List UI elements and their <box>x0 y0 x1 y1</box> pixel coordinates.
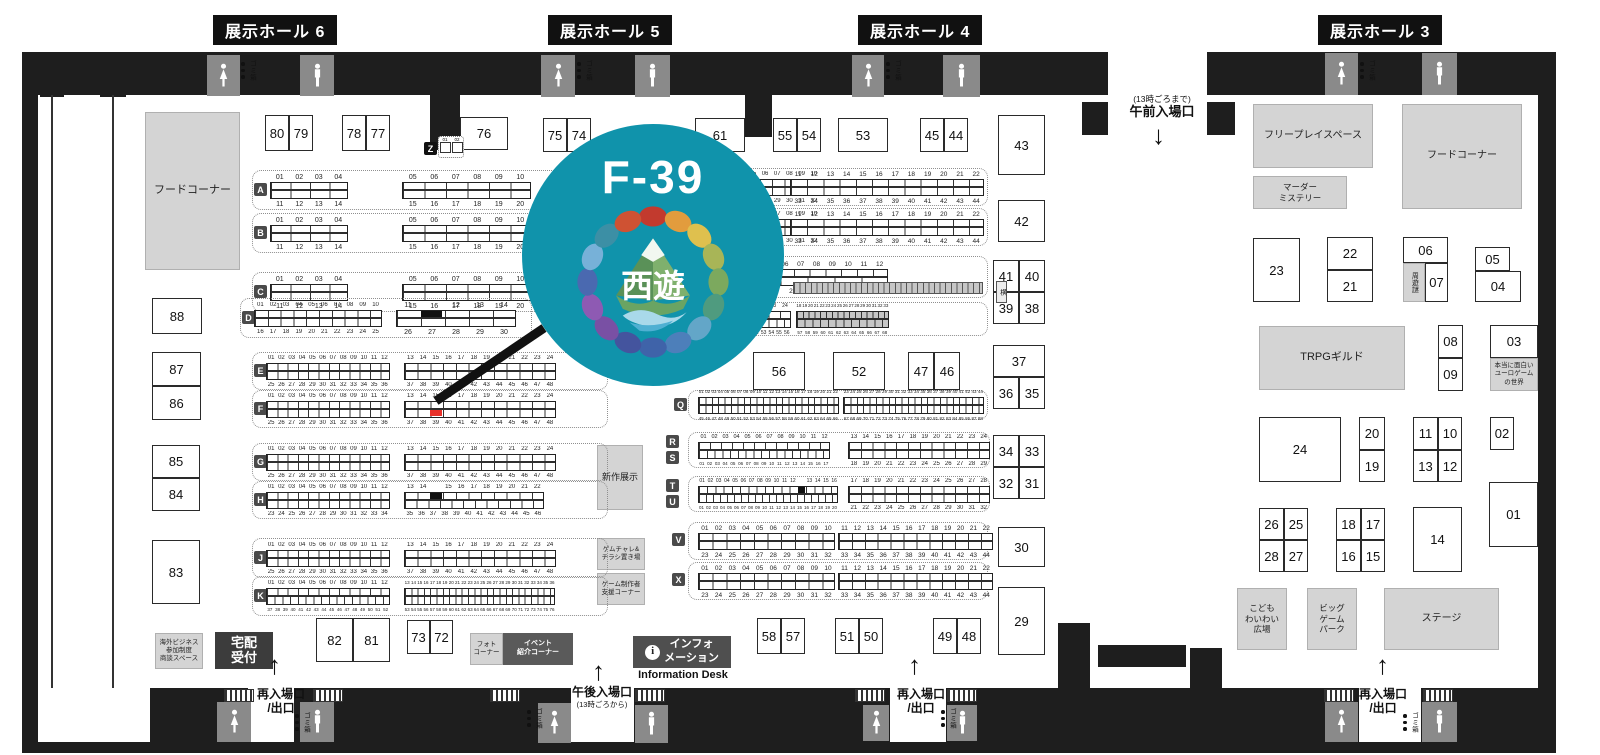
row-cell-numbers-top: 01020304 <box>270 276 348 283</box>
booth-75: 75 <box>543 118 567 152</box>
booth-76: 76 <box>460 117 508 150</box>
booth-79: 79 <box>289 115 313 151</box>
turnstile-hatch <box>947 689 977 702</box>
information-desk-en: Information Desk <box>628 669 738 682</box>
row-cell-numbers-bottom: 333435363738394041424344 <box>838 552 993 559</box>
arrow-up-icon: ↑ <box>1376 652 1389 678</box>
row-cell-numbers-bottom: 16171819202122232425 <box>254 329 382 336</box>
booth-24: 24 <box>1259 417 1341 482</box>
trash-bin-marker: ゴミ箱 <box>527 708 543 729</box>
turnstile-hatch <box>1324 689 1354 702</box>
row-booth-strip <box>404 550 556 567</box>
row-cell-numbers-bottom: 353637383940414243444546 <box>404 511 544 518</box>
row-label-A: A <box>254 183 267 196</box>
logo-text: 西遊 <box>621 268 685 304</box>
row-cell-numbers-top: 010203040506070809101112 <box>266 446 390 453</box>
row-cell-numbers-bottom: 373839404142434445464748 <box>404 420 556 427</box>
row-booth-strip <box>404 492 544 509</box>
pillar <box>1082 52 1108 95</box>
row-booth-strip <box>838 573 993 590</box>
row-label-B: B <box>254 226 267 239</box>
booth-04: 04 <box>1475 271 1521 302</box>
row-cell-numbers-top: 171819202122232425262728 <box>848 478 990 485</box>
hall-name-label: 展示ホール 3 <box>1318 15 1442 45</box>
row-booth-strip <box>266 492 390 509</box>
row-cell-numbers-top: 010203040506070809101112 <box>698 434 830 441</box>
info-icon: i <box>645 645 660 660</box>
booth-53: 53 <box>838 118 888 152</box>
row-booth-strip <box>404 588 555 605</box>
highlighted-booth-code: F-39 <box>602 150 705 204</box>
booth-11: 11 <box>1413 417 1438 450</box>
booth-80: 80 <box>265 115 289 151</box>
booth-02: 02 <box>1490 417 1514 450</box>
row-label-Q: Q <box>674 398 687 411</box>
row-booth-strip <box>698 442 830 459</box>
side-tag: 横 <box>996 281 1007 303</box>
trash-bin-marker: ゴミ箱 <box>886 60 902 81</box>
row-cell-numbers-bottom: 5354555657585960616263646566676869707172… <box>404 607 555 614</box>
row-label-T: T <box>666 479 679 492</box>
row-booth-strip <box>404 454 556 471</box>
row-label-R: R <box>666 435 679 448</box>
row-cell-numbers-top: 131415161718192021222324 <box>404 542 556 549</box>
row-booth-strip <box>396 310 516 327</box>
booth-32: 32 <box>993 467 1019 499</box>
restroom-male-icon <box>1422 702 1457 742</box>
pillar <box>1082 102 1108 135</box>
row-booth-strip <box>404 363 556 380</box>
highlight-circle: F-39 西遊 <box>522 124 784 386</box>
booth-17: 17 <box>1361 508 1385 540</box>
row-cell-numbers-top: 111213141516171819202122 <box>790 211 984 218</box>
turnstile-hatch <box>1423 689 1453 702</box>
afternoon-entrance-label: 午後入場口 <box>566 686 638 700</box>
pillar <box>1058 623 1090 688</box>
booth-83: 83 <box>152 540 200 604</box>
booth-31: 31 <box>1019 467 1045 499</box>
row-booth-strip <box>848 486 990 503</box>
booth-13: 13 <box>1413 450 1438 482</box>
arrow-down-icon: ↓ <box>1152 122 1165 148</box>
row-cell-numbers-bottom: 252627282930313233343536 <box>266 473 390 480</box>
row-label-U: U <box>666 495 679 508</box>
trash-bin-marker: ゴミ箱 <box>1360 60 1376 81</box>
z-booth: 0102 <box>438 136 464 158</box>
row-cell-numbers-bottom: 11121314 <box>270 201 348 208</box>
wall <box>1235 52 1538 95</box>
row-cell-numbers-top: 131415161718192021222324 <box>848 434 990 441</box>
area-big-game-park: ビッグ ゲーム パーク <box>1307 588 1357 650</box>
booth-45: 45 <box>920 118 944 152</box>
exhibition-floor-map: F-39 西遊 展示ホール 6展示ホール 5展示ホール 4展示ホール 3フードコ… <box>0 0 1600 755</box>
row-cell-numbers-bottom: 6768697071727374757677787980818283848586… <box>843 416 984 423</box>
restroom-female-icon <box>1325 702 1358 742</box>
area-murder-mystery: マーダー ミステリー <box>1253 176 1347 209</box>
booth-48: 48 <box>957 618 981 654</box>
row-cell-numbers-top: 050607080910 <box>402 217 531 224</box>
restroom-female-icon <box>541 55 575 97</box>
area-information-desk: iインフォ メーション <box>633 636 731 668</box>
booth-49: 49 <box>933 618 957 654</box>
booth-86: 86 <box>152 386 201 420</box>
saiyu-logo: 西遊 <box>569 198 737 366</box>
row-cell-numbers-top: 13141516171819202122 <box>404 484 544 491</box>
row-booth-strip <box>266 588 390 605</box>
turnstile-hatch <box>224 689 254 702</box>
arrow-up-icon: ↑ <box>592 658 605 684</box>
logo-pebble <box>639 337 667 357</box>
blocked-booth <box>421 311 442 317</box>
row-booth-strip <box>790 179 984 196</box>
area-eurogame-world: 本当に面白い ユーロゲーム の世界 <box>1490 358 1538 391</box>
row-cell-numbers-bottom: 333435363738394041424344 <box>790 238 984 245</box>
booth-88: 88 <box>152 298 202 334</box>
restroom-female-icon <box>1325 53 1358 95</box>
booth-44: 44 <box>944 118 968 152</box>
row-cell-numbers-bottom: 373839404142434445464748 <box>404 569 556 576</box>
booth-03: 03 <box>1490 325 1538 358</box>
restroom-female-icon <box>217 702 251 742</box>
row-cell-numbers-bottom: 0102030405060708091011121314151617 <box>698 461 830 468</box>
area-delivery-reception: 宅配 受付 <box>215 632 273 669</box>
row-cell-numbers-bottom: 232425262728293031323334 <box>266 511 390 518</box>
turnstile-hatch <box>490 689 520 702</box>
blocked-booth <box>430 493 441 499</box>
booth-16: 16 <box>1336 540 1361 572</box>
booth-81: 81 <box>353 618 390 662</box>
booth-73: 73 <box>407 620 430 654</box>
booth-27: 27 <box>1284 540 1308 572</box>
row-cell-numbers-bottom: 252627282930313233343536 <box>266 569 390 576</box>
row-booth-strip <box>402 225 531 242</box>
area-food-corner-east: フードコーナー <box>1402 104 1522 209</box>
row-label-C: C <box>254 285 267 298</box>
booth-12: 12 <box>1438 450 1462 482</box>
restroom-female-icon <box>852 55 884 97</box>
area-event-intro-corner: イベント 紹介コーナー <box>503 633 573 665</box>
row-booth-strip <box>698 533 835 550</box>
arrow-up-icon: ↑ <box>268 652 281 678</box>
gray-sub-strip <box>793 282 983 294</box>
row-label-X: X <box>672 573 685 586</box>
area-puzzle-area: 周遊謎 <box>1403 263 1425 302</box>
booth-22: 22 <box>1327 237 1373 270</box>
pillar <box>100 64 126 97</box>
turnstile-hatch <box>313 689 343 702</box>
booth-08: 08 <box>1438 325 1463 358</box>
row-cell-numbers-top: 131415161718192021222324 <box>404 446 556 453</box>
row-cell-numbers-bottom: 0102030405060708091011121314151617181920 <box>698 505 838 512</box>
morning-entrance-label: 午前入場口 <box>1120 105 1204 120</box>
row-cell-numbers-top: 131415161718192021222324 <box>404 355 556 362</box>
row-cell-numbers-bottom: 2627282930 <box>396 329 516 336</box>
row-booth-strip <box>698 397 839 414</box>
booth-38: 38 <box>1019 292 1045 324</box>
row-cell-numbers-top: 010203040506070809101112 <box>266 393 390 400</box>
turnstile-hatch <box>855 689 885 702</box>
booth-35: 35 <box>1019 377 1045 409</box>
trash-bin-marker: ゴミ箱 <box>577 60 593 81</box>
booth-28: 28 <box>1259 540 1284 572</box>
row-cell-numbers-bottom: 23242526272829303132 <box>698 592 835 599</box>
row-cell-numbers-bottom: 373839404142434445464748 <box>404 382 556 389</box>
booth-72: 72 <box>430 620 453 654</box>
hall-name-label: 展示ホール 4 <box>858 15 982 45</box>
booth-33: 33 <box>1019 435 1045 467</box>
row-cell-numbers-top: 01020304 <box>270 174 348 181</box>
row-cell-numbers-bottom: 11121314 <box>270 244 348 251</box>
booth-58: 58 <box>757 618 781 654</box>
booth-52: 52 <box>833 352 885 390</box>
logo-pebble <box>577 268 597 296</box>
booth-14: 14 <box>1413 507 1462 572</box>
row-cell-numbers-bottom: 575859606162636465666768 <box>796 330 889 337</box>
area-overseas-business-space: 海外ビジネス 参加制度 商談スペース <box>155 633 203 669</box>
wall-line <box>112 95 114 688</box>
row-cell-numbers-top: 1314151617181920212223242526272829303132… <box>404 580 555 587</box>
pillar <box>40 64 64 97</box>
trash-bin-marker: ゴミ箱 <box>295 712 311 733</box>
booth-36: 36 <box>993 377 1019 409</box>
row-booth-strip <box>270 225 348 242</box>
booth-43: 43 <box>998 115 1045 175</box>
row-booth-strip <box>796 311 889 328</box>
booth-42: 42 <box>998 200 1045 242</box>
booth-40: 40 <box>1019 260 1045 292</box>
row-booth-strip <box>266 550 390 567</box>
row-cell-numbers-bottom: 252627282930313233343536 <box>266 420 390 427</box>
row-cell-numbers-bottom: 333435363738394041424344 <box>838 592 993 599</box>
afternoon-entrance-note: (13時ごろから) <box>562 701 642 710</box>
restroom-male-icon <box>635 55 670 97</box>
row-cell-numbers-bottom: 252627282930313233343536 <box>266 382 390 389</box>
pillar <box>1098 645 1186 667</box>
row-booth-strip <box>266 454 390 471</box>
booth-51: 51 <box>835 618 859 654</box>
restroom-male-icon <box>943 55 980 97</box>
row-cell-numbers-top: 010203040506070809101112 <box>266 484 390 491</box>
trash-bin-marker: ゴミ箱 <box>241 60 257 81</box>
booth-78: 78 <box>342 115 366 151</box>
row-booth-strip <box>843 397 984 414</box>
booth-37: 37 <box>993 345 1045 377</box>
row-cell-numbers-top: 111213141516171819202122 <box>838 525 993 532</box>
row-cell-numbers-top: 01020304050607080910 <box>698 565 835 572</box>
booth-06: 06 <box>1403 237 1448 263</box>
pillar <box>1190 648 1222 688</box>
pillar <box>1207 102 1235 135</box>
booth-30: 30 <box>998 527 1045 567</box>
restroom-male-icon <box>300 55 334 96</box>
row-label-Z: Z <box>424 142 437 155</box>
booth-82: 82 <box>316 618 353 662</box>
row-cell-numbers-bottom: 4546474849505152535455565758596061626364… <box>698 416 839 423</box>
row-booth-strip <box>790 219 984 236</box>
wall <box>22 742 1556 753</box>
booth-26: 26 <box>1259 508 1284 540</box>
turnstile-hatch <box>635 689 665 702</box>
row-booth-strip <box>266 401 390 418</box>
restroom-male-icon <box>1422 53 1457 95</box>
booth-23: 23 <box>1253 238 1300 302</box>
pillar <box>1207 52 1235 95</box>
area-free-play-space: フリープレイスペース <box>1253 104 1373 168</box>
hall-name-label: 展示ホール 6 <box>213 15 337 45</box>
row-booth-strip <box>848 442 990 459</box>
row-cell-numbers-top: 11121314 <box>396 302 516 309</box>
booth-84: 84 <box>152 478 200 511</box>
booth-01: 01 <box>1489 482 1538 547</box>
restroom-female-icon <box>207 55 240 96</box>
wall <box>22 52 38 752</box>
row-cell-numbers-top: 050607080910 <box>402 174 531 181</box>
booth-50: 50 <box>859 618 883 654</box>
booth-47: 47 <box>908 352 934 390</box>
area-photo-corner: フォト コーナー <box>470 633 503 665</box>
row-cell-numbers-bottom: 37383940414243444546474849505152 <box>266 607 390 614</box>
booth-57: 57 <box>781 618 805 654</box>
row-cell-numbers-bottom: 23242526272829303132 <box>698 552 835 559</box>
row-cell-numbers-top: 050607080910 <box>402 276 531 283</box>
booth-46: 46 <box>934 352 960 390</box>
restroom-female-icon <box>538 703 571 743</box>
booth-21: 21 <box>1327 270 1373 302</box>
restroom-female-icon <box>863 705 889 741</box>
row-booth-strip <box>266 363 390 380</box>
row-cell-numbers-top: 18192021222324252627282930313233 <box>796 303 889 310</box>
blocked-booth <box>798 487 805 493</box>
row-cell-numbers-bottom: 151617181920 <box>402 244 531 251</box>
trash-bin-marker: ゴミ箱 <box>941 708 957 729</box>
row-cell-numbers-bottom: 212223242526272829303132 <box>848 505 990 512</box>
row-cell-numbers-top: 010203040506070809101112 <box>266 355 390 362</box>
area-trpg-guild: TRPGギルド <box>1259 326 1405 390</box>
row-cell-numbers-bottom: 333435363738394041424344 <box>790 198 984 205</box>
booth-29: 29 <box>998 587 1045 655</box>
wall <box>1538 52 1556 742</box>
trash-bin-marker: ゴミ箱 <box>1403 712 1419 733</box>
row-cell-numbers-top: 131415161718192021222324 <box>404 393 556 400</box>
arrow-up-icon: ↑ <box>908 652 921 678</box>
booth-05: 05 <box>1475 247 1510 271</box>
row-cell-numbers-top: 111213141516171819202122 <box>790 171 984 178</box>
row-cell-numbers-top: 010203040506070809101112 <box>266 580 390 587</box>
row-label-S: S <box>666 451 679 464</box>
restroom-male-icon <box>635 705 668 743</box>
booth-77: 77 <box>366 115 390 151</box>
booth-25: 25 <box>1284 508 1308 540</box>
row-label-V: V <box>672 533 685 546</box>
row-booth-strip <box>402 182 531 199</box>
row-cell-numbers-top: 2324252627282930313233343536373839404142… <box>843 389 984 396</box>
logo-pebble <box>708 268 728 296</box>
row-booth-strip <box>698 486 838 503</box>
logo-pebble <box>639 206 667 226</box>
row-cell-numbers-top: 01020304050607080910 <box>254 302 382 309</box>
row-booth-strip <box>404 401 556 418</box>
booth-15: 15 <box>1361 540 1385 572</box>
booth-54: 54 <box>797 118 821 152</box>
booth-34: 34 <box>993 435 1019 467</box>
wall-line <box>51 95 53 688</box>
row-booth-strip <box>254 310 382 327</box>
row-cell-numbers-top: 111213141516171819202122 <box>838 565 993 572</box>
booth-18: 18 <box>1336 508 1361 540</box>
booth-55: 55 <box>773 118 797 152</box>
row-cell-numbers-bottom: 181920212223242526272829 <box>848 461 990 468</box>
row-booth-strip <box>838 533 993 550</box>
booth-87: 87 <box>152 352 201 386</box>
area-kids-plaza: こども わいわい 広場 <box>1237 588 1287 650</box>
row-cell-numbers-top: 01020304050607080910111213141516 <box>698 478 838 485</box>
row-cell-numbers-top: 01020304 <box>270 217 348 224</box>
area-stage: ステージ <box>1384 588 1499 650</box>
booth-56: 56 <box>753 352 805 390</box>
booth-85: 85 <box>152 445 200 478</box>
booth-07: 07 <box>1425 263 1448 302</box>
booth-19: 19 <box>1359 450 1385 482</box>
hall-name-label: 展示ホール 5 <box>548 15 672 45</box>
row-cell-numbers-bottom: 151617181920 <box>402 201 531 208</box>
row-cell-numbers-bottom: 373839404142434445464748 <box>404 473 556 480</box>
booth-20: 20 <box>1359 417 1385 450</box>
booth-09: 09 <box>1438 358 1463 391</box>
highlighted-red-booth <box>430 410 441 416</box>
row-booth-strip <box>698 573 835 590</box>
pillar <box>745 60 772 137</box>
row-cell-numbers-top: 010203040506070809101112 <box>266 542 390 549</box>
area-food-corner-west: フードコーナー <box>145 112 240 270</box>
row-booth-strip <box>270 182 348 199</box>
booth-10: 10 <box>1438 417 1462 450</box>
row-cell-numbers-top: 0102030405060708091011121314151617181920… <box>698 389 839 396</box>
row-cell-numbers-top: 01020304050607080910 <box>698 525 835 532</box>
